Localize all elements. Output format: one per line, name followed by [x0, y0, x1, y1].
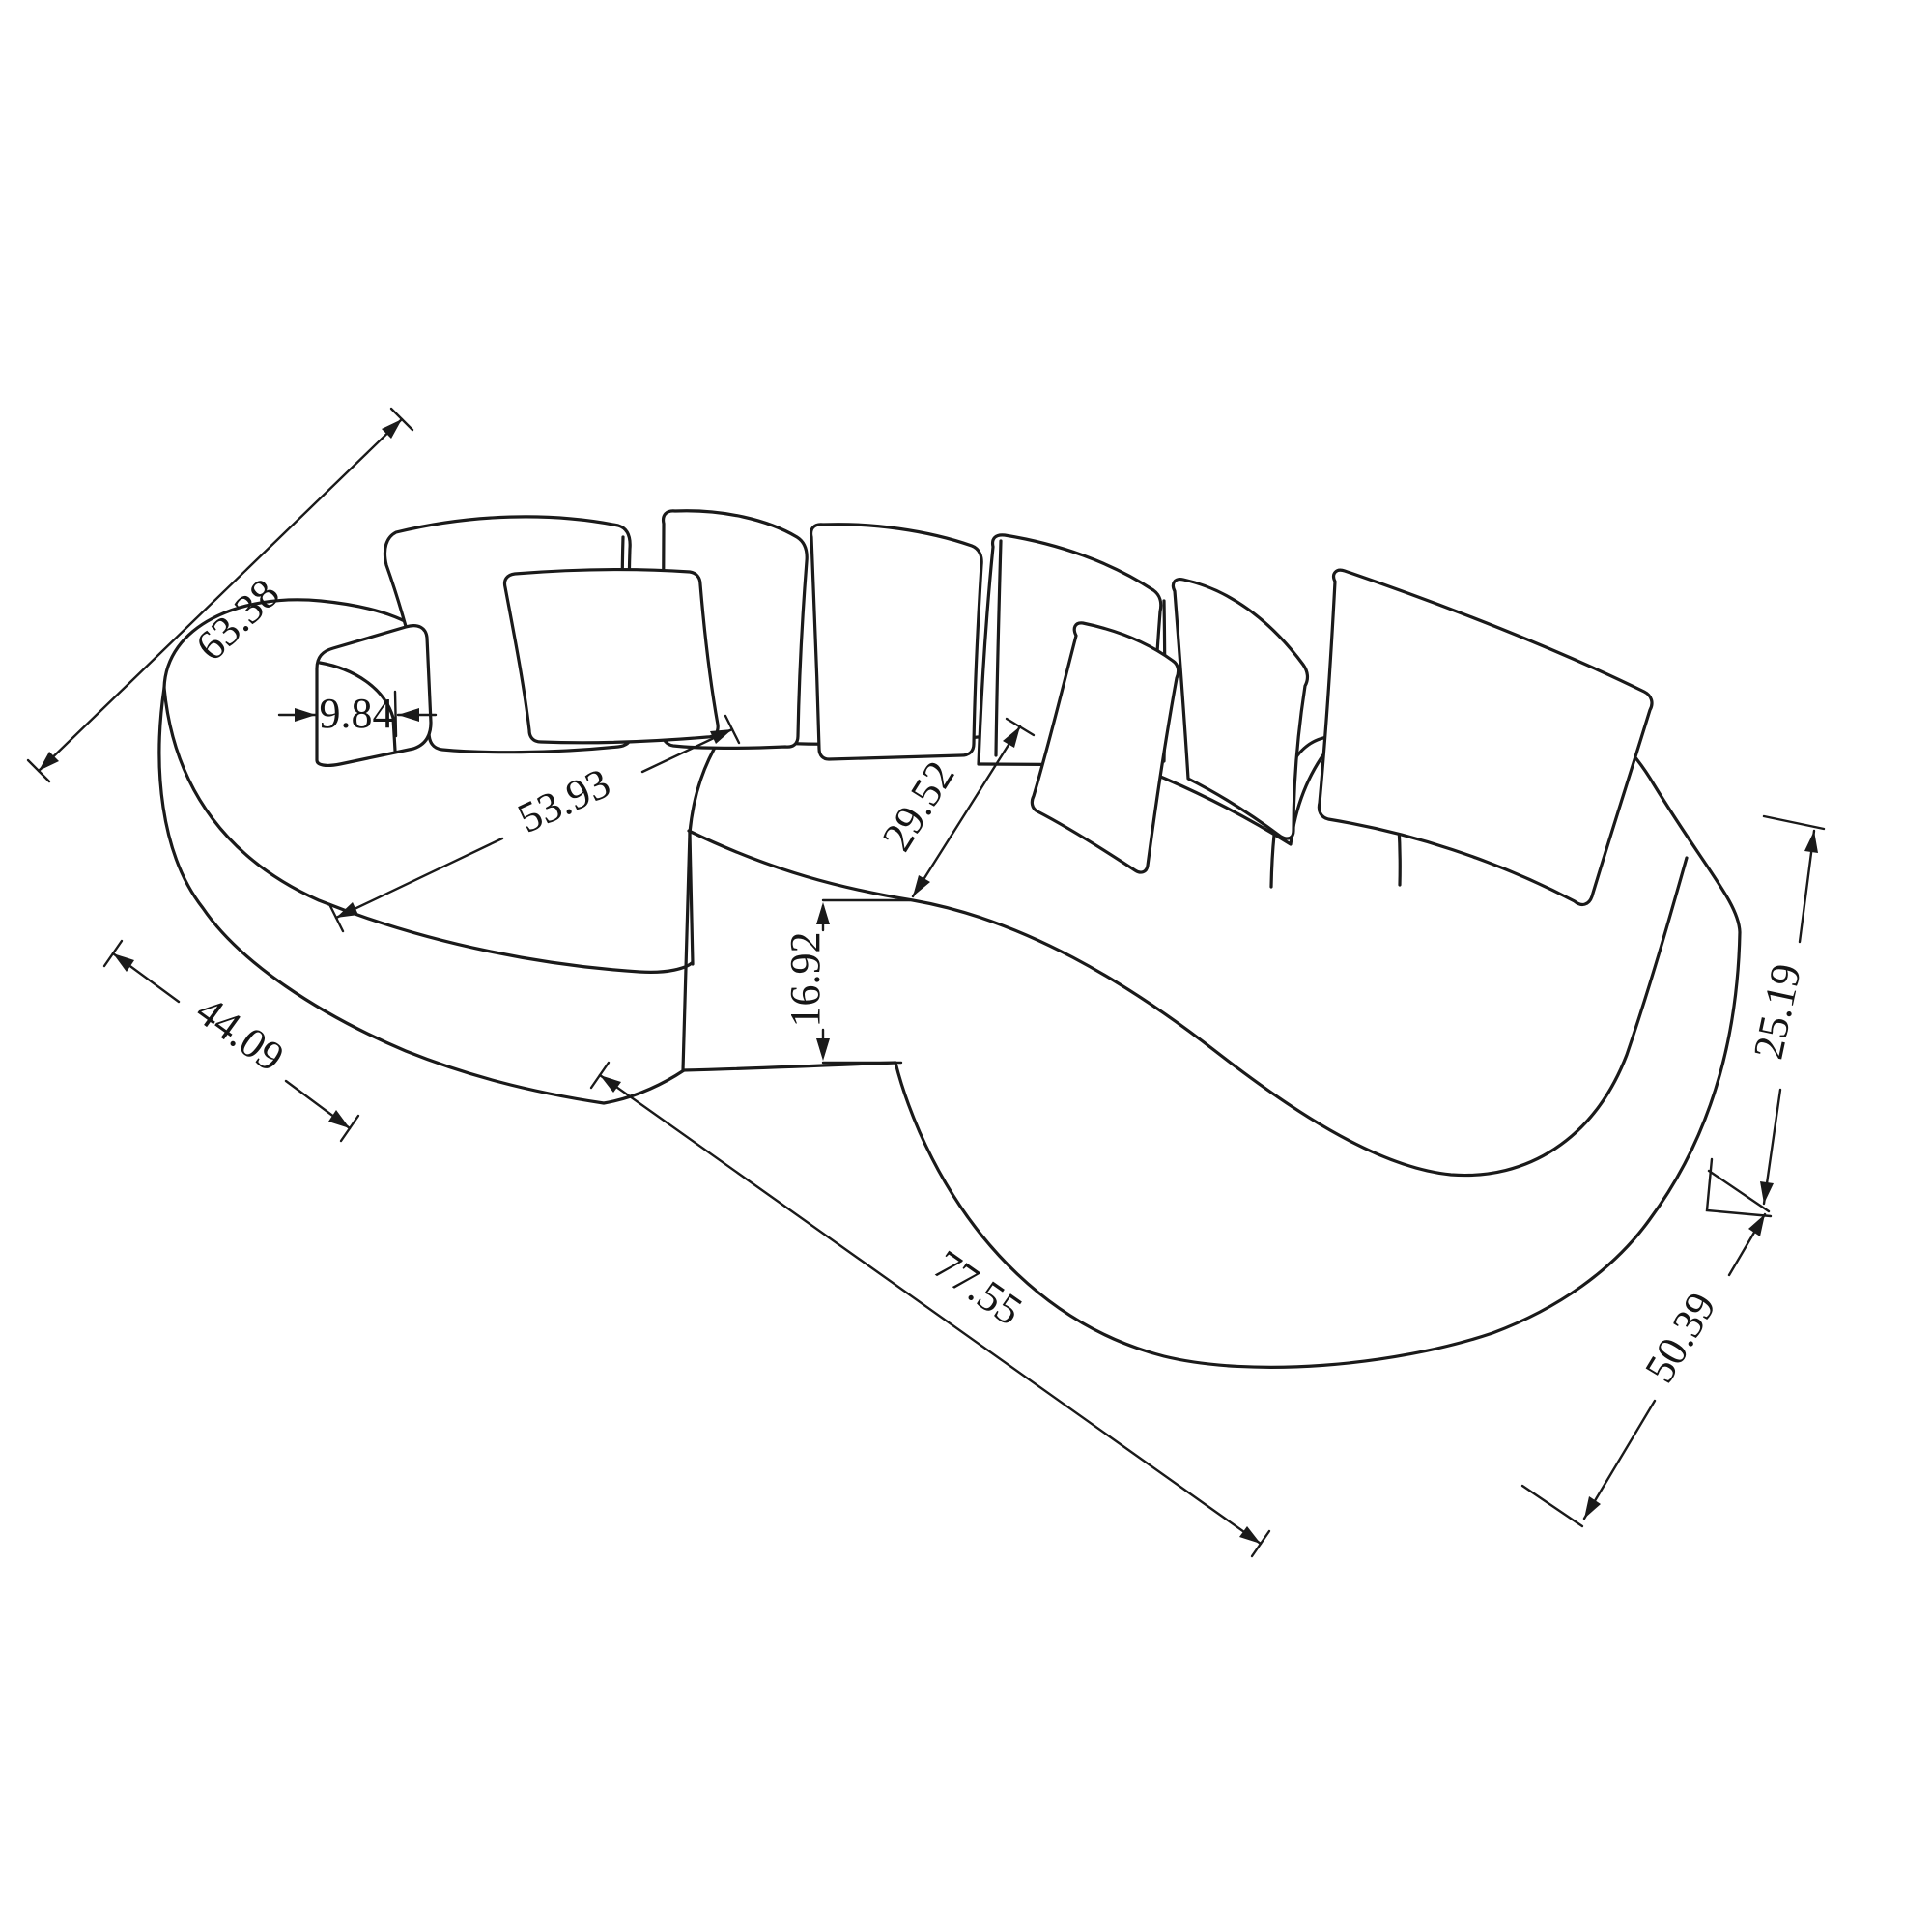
arrowhead [328, 1110, 350, 1128]
throw-pillow-left [504, 570, 718, 743]
arrowhead [1760, 1181, 1774, 1204]
extension-tick [395, 692, 396, 736]
back-cushion-3 [811, 525, 982, 759]
dim-label: 25.19 [1745, 959, 1811, 1063]
bracket [1707, 1159, 1771, 1216]
extension-tick [1252, 1531, 1269, 1556]
extension-tick [341, 1116, 358, 1141]
dim-label: 44.09 [187, 986, 293, 1081]
dim-label: 9.84 [320, 690, 394, 737]
arrowhead [1239, 1526, 1261, 1544]
sofa-dimension-drawing: 63.38 9.84 53.93 44.09 29.52 [0, 0, 1932, 1932]
dim-label: 16.92 [781, 932, 829, 1028]
dim-label: 50.39 [1635, 1284, 1725, 1390]
arrowhead [1584, 1496, 1601, 1519]
extension-tick [1522, 1486, 1582, 1526]
arrowhead [113, 953, 134, 972]
drawing-canvas: 63.38 9.84 53.93 44.09 29.52 [0, 0, 1932, 1932]
extension-tick [104, 941, 122, 966]
arrowhead [1804, 831, 1818, 853]
arrowhead [1748, 1214, 1765, 1236]
extension-tick [1764, 816, 1824, 829]
extension-tick [1709, 1171, 1769, 1211]
